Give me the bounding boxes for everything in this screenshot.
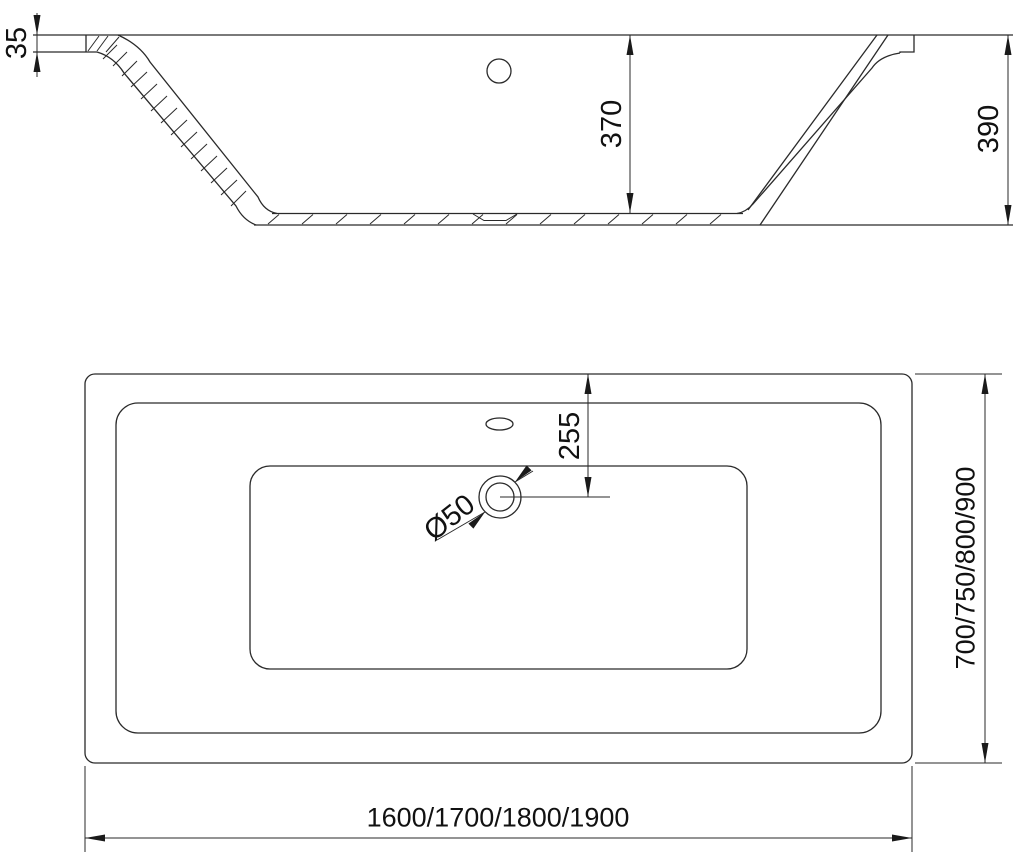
dim-35-label: 35 (1, 27, 33, 59)
dim-370-label: 370 (596, 100, 628, 148)
dim-length-arrow-left (85, 835, 105, 842)
overflow-hole-side (487, 59, 511, 83)
dimension-overall-length: 1600/1700/1800/1900 (85, 766, 912, 852)
drawing-svg: 35 370 390 (0, 0, 1024, 858)
dim-390-arrow-up (1005, 35, 1012, 55)
side-view: 35 370 390 (1, 13, 1013, 225)
right-wall-edge-b (760, 35, 888, 225)
dim-35-arrow-down (34, 15, 41, 35)
dim-width-label: 700/750/800/900 (950, 467, 980, 670)
rim-hatch-lines (88, 36, 119, 52)
overflow-hole-plan (486, 418, 513, 430)
floor-rect (250, 466, 747, 669)
dimension-overall-width: 700/750/800/900 (915, 374, 1002, 763)
dim-length-arrow-right (892, 835, 912, 842)
inner-rim-rect (116, 403, 881, 733)
plan-view: 255 Ø50 1600/1700/1800/1900 700/750/ (85, 374, 1002, 852)
dim-370-arrow-down (627, 193, 634, 213)
floor-hatch-lines (268, 215, 721, 225)
dimension-overall-height: 390 (973, 35, 1011, 225)
dim-length-label: 1600/1700/1800/1900 (367, 802, 630, 832)
right-wall-inner (737, 53, 900, 214)
dim-255-arrow-down (585, 477, 592, 497)
dim-390-label: 390 (973, 105, 1005, 153)
left-wall-outer (97, 52, 256, 225)
dimension-drain-diameter: Ø50 (418, 465, 533, 547)
dim-390-arrow-down (1005, 205, 1012, 225)
dim-diameter-label: Ø50 (418, 488, 481, 547)
dimension-drain-offset: 255 (554, 374, 591, 497)
side-view-outline (33, 35, 1013, 225)
dim-35-arrow-up (34, 52, 41, 72)
technical-drawing: 35 370 390 (0, 0, 1024, 858)
rim-step-detail (900, 35, 914, 53)
plan-view-outline (85, 374, 912, 763)
dim-width-arrow-up (982, 374, 989, 394)
outer-rim-rect (85, 374, 912, 763)
dim-255-label: 255 (554, 412, 586, 460)
left-wall-inner (118, 35, 277, 214)
dim-width-arrow-down (982, 743, 989, 763)
dimension-inner-depth: 370 (596, 35, 633, 213)
dim-370-arrow-up (627, 35, 634, 55)
right-wall-edge-a (748, 35, 877, 210)
dim-255-arrow-up (585, 374, 592, 394)
wall-hatch-lines (103, 45, 246, 206)
dimension-rim-thickness: 35 (1, 13, 40, 77)
